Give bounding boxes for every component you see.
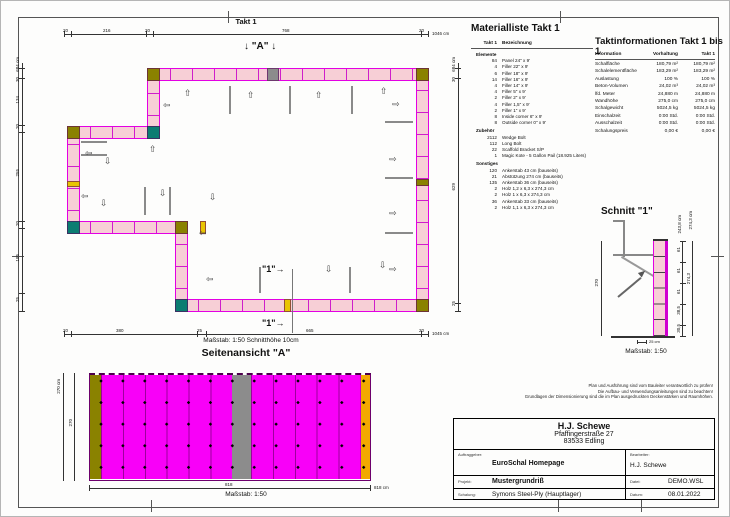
fold-mark: [641, 500, 642, 512]
company-street: Pfaffingerstraße 27: [454, 431, 714, 438]
yellow-filler-block: [284, 299, 291, 312]
takt-info-label: Einschalzeit: [595, 113, 643, 120]
material-list-row: 1 Magic Kote - 5 Gallon Pail (18.925 Lit…: [471, 153, 623, 159]
title-block-divider: [454, 475, 714, 476]
dim-tick: [19, 132, 25, 133]
takt-info-label: Schalungspreis: [595, 128, 643, 135]
dim-line-section-a: [682, 241, 683, 336]
title-block-divider: [625, 449, 626, 499]
dim-label: 20: [15, 221, 20, 226]
dim-label: 274,3 cm: [688, 211, 693, 230]
takt-info-vorhaltung: 5024,5 kg: [643, 105, 678, 112]
wall-upper-left-horizontal: [67, 126, 159, 139]
dim-label: 629: [451, 183, 456, 191]
material-list-divider: [471, 48, 593, 49]
dim-tick: [19, 293, 25, 294]
ground-line: [611, 336, 675, 338]
dim-tick: [646, 340, 647, 344]
down-arrow-icon: ⇩: [209, 193, 217, 202]
takt-info-vorhaltung: 100 %: [643, 76, 678, 83]
material-qty: 1: [471, 153, 497, 159]
dim-line-elevation-outer: [63, 373, 64, 481]
fold-mark: [711, 256, 724, 257]
auftraggeber-label: Auftraggeber:: [458, 452, 482, 457]
dim-label: 243,8 cm: [677, 215, 682, 234]
takt-info-row: Einschalzeit 0:00 Std. 0:00 Std.: [595, 113, 715, 120]
dim-tick: [680, 262, 686, 263]
dim-label: 30,5: [676, 324, 681, 333]
view-a-marker: ↓ "A" ↓: [244, 41, 276, 52]
right-arrow-icon: ⇨: [392, 100, 400, 109]
takt-info-label: lfd. Meter: [595, 91, 643, 98]
dim-tick: [19, 228, 25, 229]
down-arrow-icon: ⇩: [379, 261, 387, 270]
right-arrow-icon: ⇨: [389, 155, 397, 164]
dim-total-label: 1046 cm: [432, 31, 449, 36]
takt-info-label: Auslastung: [595, 76, 643, 83]
dim-tick: [370, 485, 371, 491]
datei-label: Datei:: [630, 479, 640, 484]
left-arrow-icon: ⇦: [206, 275, 214, 284]
schalung-value: Symons Steel-Ply (Hauptlager): [492, 491, 581, 498]
inside-corner-block: [147, 126, 160, 139]
left-arrow-icon: ⇦: [199, 229, 207, 238]
inside-corner-block: [175, 299, 188, 312]
dim-line-section-b: [692, 241, 693, 336]
elevation-tie-marks: [99, 379, 367, 477]
takt-info-takt1: 0:00 Std.: [678, 120, 715, 127]
bearbeiter-value: H.J. Schewe: [630, 462, 667, 469]
outside-corner-block: [416, 299, 429, 312]
section-view-scale: Maßstab: 1:50: [601, 348, 691, 355]
wall-bottom: [175, 299, 429, 312]
projekt-value: Mustergrundriß: [492, 478, 544, 485]
brace-prop: [144, 187, 146, 215]
section-marker: "1"→: [262, 319, 285, 328]
takt-info-vorhaltung: 180,79 m²: [643, 61, 678, 68]
brace-prop: [385, 121, 413, 123]
section-view-title: Schnitt "1": [601, 207, 653, 217]
fold-mark: [151, 500, 152, 512]
up-arrow-icon: ⇧: [315, 91, 323, 100]
takt-info-divider: [595, 59, 715, 60]
takt-info-label: Wandhöhe: [595, 98, 643, 105]
dim-label: 38,5: [676, 306, 681, 315]
inside-corner-block: [67, 221, 80, 234]
takt-info-label: Schalelementfläche: [595, 68, 643, 75]
dim-tick: [89, 485, 90, 491]
takt-info-row: Beton-Volumen 24,02 m³ 24,02 m³: [595, 83, 715, 90]
takt-info-takt1: 275,0 cm: [678, 98, 715, 105]
down-arrow-icon: ↓: [244, 41, 249, 52]
outside-corner-block: [67, 126, 80, 139]
brace-prop: [169, 187, 171, 215]
dim-label: 20: [419, 28, 424, 33]
dim-tick: [455, 311, 461, 312]
dim-label: 216: [103, 28, 111, 33]
view-a-label: "A": [252, 41, 269, 52]
down-arrow-icon: ⇩: [104, 157, 112, 166]
up-arrow-icon: ⇧: [184, 89, 192, 98]
takt-info-row: Ausschalzeit 0:00 Std. 0:00 Std.: [595, 120, 715, 127]
title-block: H.J. Schewe Pfaffingerstraße 27 83533 Ed…: [453, 418, 715, 500]
title-block-divider: [454, 488, 714, 489]
up-arrow-icon: ⇧: [380, 87, 388, 96]
left-arrow-icon: ⇦: [85, 149, 93, 158]
dim-tick: [428, 331, 429, 337]
dim-label: 255: [15, 169, 20, 177]
left-arrow-icon: ⇦: [81, 192, 89, 201]
takt-info-row: lfd. Meter 24,880 m 24,880 m: [595, 91, 715, 98]
left-arrow-icon: ⇦: [163, 101, 171, 110]
dim-label: 30: [451, 77, 456, 82]
dim-total-label: 1045 cm: [432, 331, 449, 336]
dim-label: 25: [451, 301, 456, 306]
dim-line-elevation-bottom: [89, 488, 371, 489]
material-col-qty: Takt 1: [471, 41, 497, 47]
dim-tick: [680, 241, 686, 242]
gray-filler-block: [267, 68, 279, 81]
dim-label: 270: [594, 279, 599, 287]
takt-info-label: Schalfläche: [595, 61, 643, 68]
brace-prop: [385, 177, 413, 179]
dim-line-bottom: [64, 334, 429, 335]
takt-col-vorhaltung: Vorhaltung: [643, 51, 678, 58]
dim-line-elevation-inner: [74, 373, 75, 481]
company-city: 83533 Edling: [454, 438, 714, 445]
takt-info-label: Schalgewicht: [595, 105, 643, 112]
takt-info-takt1: 24,880 m: [678, 91, 715, 98]
side-view-elevation: [89, 373, 371, 481]
dim-line-section-left: [601, 241, 602, 336]
takt-info-takt1: 183,29 m²: [678, 68, 715, 75]
outside-corner-block: [147, 68, 160, 81]
disclaimer-line: Grundlagen der Dimensionierung sind die …: [401, 394, 713, 400]
wall-mid-horizontal: [67, 221, 188, 234]
takt-info-rows: Schalfläche 180,79 m² 180,79 m² Schalele…: [595, 61, 715, 135]
section-marker-label: "1": [262, 264, 276, 274]
takt-info-label: Beton-Volumen: [595, 83, 643, 90]
plan-scale-note: Maßstab: 1:50 Schnitthöhe 10cm: [141, 337, 361, 344]
dim-line-right: [458, 63, 459, 312]
dim-total-label: 684 cm: [451, 57, 456, 72]
takt-info-takt1: 5024,5 kg: [678, 105, 715, 112]
takt-info-vorhaltung: 0:00 Std.: [643, 120, 678, 127]
dim-label: 30: [15, 77, 20, 82]
dim-total-label: 270 cm: [56, 379, 61, 394]
dim-tick: [680, 336, 686, 337]
right-arrow-icon: ⇨: [389, 265, 397, 274]
material-qty: 2: [471, 205, 497, 211]
takt-info-vorhaltung: 183,29 m²: [643, 68, 678, 75]
dim-label: 61: [676, 247, 681, 252]
plan-title: Takt 1: [216, 17, 276, 26]
right-arrow-icon: →: [276, 264, 285, 274]
scale-bar-label: 25 cm: [649, 339, 660, 344]
wall-top: [147, 68, 429, 81]
dim-label: 25: [15, 297, 20, 302]
dim-label: 20: [63, 328, 68, 333]
brace-prop: [229, 86, 231, 114]
dim-label: 818: [225, 482, 233, 487]
title-block-company: H.J. Schewe Pfaffingerstraße 27 83533 Ed…: [454, 421, 714, 445]
takt-info-vorhaltung: 24,02 m³: [643, 83, 678, 90]
dim-label: 20: [15, 124, 20, 129]
up-arrow-icon: ⇧: [149, 145, 157, 154]
dim-tick: [19, 311, 25, 312]
dim-line-left: [22, 63, 23, 312]
drawing-sheet: Takt 1 ↓ "A" ↓ 20 216 20 768 20 1046 cm …: [0, 0, 730, 517]
auftraggeber-value: EuroSchal Homepage: [492, 460, 564, 467]
dim-tick: [153, 31, 154, 37]
down-arrow-icon: ⇩: [325, 265, 333, 274]
takt-col-information: Information: [595, 51, 643, 58]
takt-info-vorhaltung: 0,00 €: [643, 128, 678, 135]
wall-left: [67, 126, 80, 234]
takt-info-takt1: 0:00 Std.: [678, 113, 715, 120]
section-line: [292, 269, 293, 333]
takt-info-row: Auslastung 100 % 100 %: [595, 76, 715, 83]
dim-tick: [71, 331, 72, 337]
dim-label: 61: [676, 289, 681, 294]
dim-label: 25: [197, 328, 202, 333]
down-arrow-icon: ⇩: [159, 189, 167, 198]
outside-corner-block: [175, 221, 188, 234]
dim-label: 61: [676, 268, 681, 273]
up-arrow-icon: ⇧: [247, 91, 255, 100]
olive-filler-block: [416, 179, 429, 186]
brace-prop: [289, 86, 291, 114]
fold-mark: [558, 500, 559, 512]
takt-col-takt1: Takt 1: [678, 51, 715, 58]
takt-info-vorhaltung: 275,0 cm: [643, 98, 678, 105]
takt-info-row: Wandhöhe 275,0 cm 275,0 cm: [595, 98, 715, 105]
right-arrow-icon: ⇨: [389, 209, 397, 218]
dim-label: 185: [15, 254, 20, 262]
takt-info-vorhaltung: 0:00 Std.: [643, 113, 678, 120]
side-view-title: Seitenansicht "A": [131, 347, 361, 359]
side-view-scale: Maßstab: 1:50: [131, 491, 361, 498]
title-block-divider: [454, 449, 714, 450]
datum-label: Datum:: [630, 492, 643, 497]
material-qty: 8: [471, 120, 497, 126]
dim-label: 20: [145, 28, 150, 33]
fold-mark: [560, 11, 561, 23]
takt-info-label: Ausschalzeit: [595, 120, 643, 127]
dim-tick: [637, 340, 638, 344]
wall-right: [416, 68, 429, 312]
material-name: Magic Kote - 5 Gallon Pail (18.925 Liter…: [502, 153, 623, 159]
brace-prop: [349, 267, 351, 293]
dim-label: 20: [63, 28, 68, 33]
takt-info-row: Schalelementfläche 183,29 m² 183,29 m²: [595, 68, 715, 75]
datum-value: 08.01.2022: [668, 491, 701, 498]
dim-label: 270: [68, 419, 73, 427]
material-list-title: Materialliste Takt 1: [471, 23, 560, 34]
takt-info-takt1: 180,79 m²: [678, 61, 715, 68]
dim-label: 768: [282, 28, 290, 33]
dim-total-label: 818 cm: [374, 485, 389, 490]
dim-label: 134: [15, 96, 20, 104]
takt-info-takt1: 100 %: [678, 76, 715, 83]
takt-info-vorhaltung: 24,880 m: [643, 91, 678, 98]
brace-prop: [351, 86, 353, 114]
brace-prop: [259, 267, 261, 293]
dim-total-label: 684 cm: [15, 57, 20, 72]
brace-prop: [81, 141, 107, 143]
dim-label: 380: [116, 328, 124, 333]
takt-info-row: Schalfläche 180,79 m² 180,79 m²: [595, 61, 715, 68]
takt-info-takt1: 24,02 m³: [678, 83, 715, 90]
dim-tick: [428, 31, 429, 37]
section-marker-label: "1": [262, 318, 276, 328]
brace-prop: [385, 232, 413, 234]
section-marker: "1"→: [262, 265, 285, 274]
yellow-filler-block: [67, 181, 80, 187]
disclaimer: Plan und Ausführung sind vom Bauleiter v…: [401, 383, 713, 400]
scaffold-bracket-post: [623, 220, 625, 257]
takt-info-header: Information Vorhaltung Takt 1: [595, 51, 715, 58]
dim-total-label: 274,3: [686, 273, 691, 284]
bearbeiter-label: Bearbeiter:: [630, 452, 650, 457]
projekt-label: Projekt:: [458, 479, 472, 484]
down-arrow-icon: ↓: [271, 41, 276, 52]
dim-line-top: [64, 34, 429, 35]
datei-value: DEMO.WSL: [668, 478, 703, 485]
takt-info-row: Schalgewicht 5024,5 kg 5024,5 kg: [595, 105, 715, 112]
company-name: H.J. Schewe: [454, 421, 714, 431]
right-arrow-icon: →: [276, 318, 285, 328]
dim-label: 665: [306, 328, 314, 333]
takt-info-row: Schalungspreis 0,00 € 0,00 €: [595, 128, 715, 135]
scaffold-bracket-plank: [613, 254, 655, 256]
takt-info-takt1: 0,00 €: [678, 128, 715, 135]
section-wall: [653, 241, 668, 336]
schalung-label: Schalung:: [458, 492, 476, 497]
dim-label: 20: [419, 328, 424, 333]
down-arrow-icon: ⇩: [100, 199, 108, 208]
outside-corner-block: [416, 68, 429, 81]
dim-tick: [71, 31, 72, 37]
